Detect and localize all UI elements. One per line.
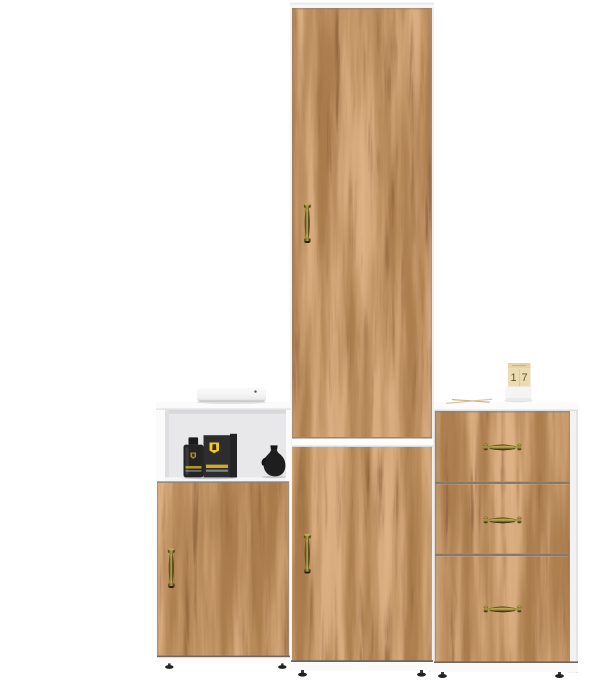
svg-text:1: 1 [511,372,517,384]
svg-text:7: 7 [522,372,528,384]
